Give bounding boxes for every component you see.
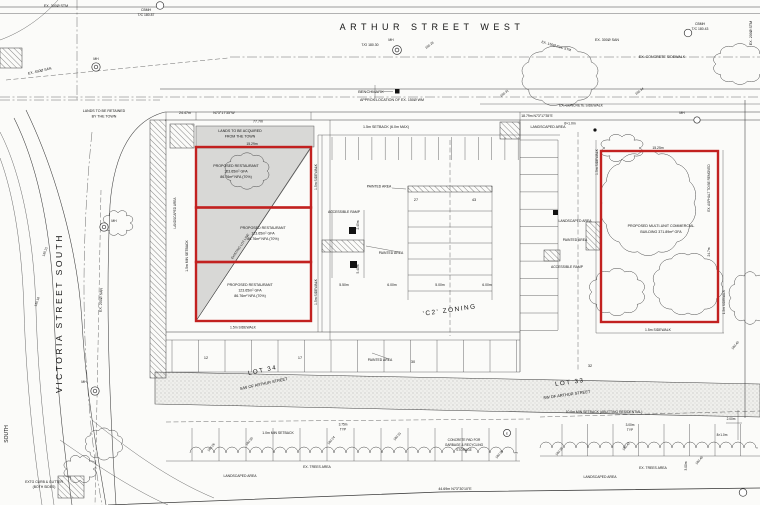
spot-elev-7: 180.31 (393, 431, 402, 441)
curb-gutter-1: EXTG CURB & GUTTER (25, 480, 63, 484)
spot-elev-10: 180.42 (622, 441, 631, 451)
dim-600a: 6.00m (387, 283, 397, 287)
ex-300-stm-label: EX. 300Ø STM (44, 4, 68, 8)
restaurant1-line3: 86.76m² NFA (70%) (220, 175, 252, 179)
dim-375-left-a: 3.75m (339, 423, 348, 427)
spot-elev-9: 180.35 (555, 446, 564, 456)
accessible-parking-sign-icon (349, 227, 356, 234)
arthur-street-name: ARTHUR STREET WEST (340, 22, 525, 32)
tree-icon (653, 253, 723, 314)
dim-2447: 24.47m (179, 111, 191, 115)
stall-count-43: 43 (472, 198, 476, 202)
manhole-icon (739, 489, 747, 497)
lands-retained-2: BY THE TOWN (92, 115, 117, 119)
tree-icon (103, 211, 133, 236)
sidewalk-left-v2: 1.5m SIDEWALK (314, 278, 318, 305)
benchmark-icon (395, 89, 400, 94)
tree-icon (589, 268, 644, 316)
mh-arthur-elev: T/O 180.30 (362, 43, 379, 47)
proposed-commercial-building-outline (601, 151, 718, 322)
curb-gutter-2: (BOTH SIDES) (33, 485, 56, 489)
stall-count-30: 30 (411, 360, 415, 364)
spot-elev-13: 180.21 (42, 246, 49, 257)
cbmh-ne-label: CBMH (695, 22, 706, 26)
spot-elev-6: 180.24 (327, 435, 336, 445)
landscaped-left-v: LANDSCAPED AREA (173, 197, 177, 229)
dim-1529: 15.29m (246, 142, 257, 146)
tree-clouds (64, 44, 760, 483)
stall-count-27: 27 (414, 198, 418, 202)
restaurant2-line2: 123.65m² GFA (251, 232, 275, 236)
dim-550: 5.50m (339, 283, 349, 287)
spot-elev-2: 180.31 (499, 88, 509, 97)
accessible-ramp-1: ACCESSIBLE RAMP (328, 210, 361, 214)
stall-count-12: 12 (204, 356, 208, 360)
mh-e-label: MH (679, 111, 685, 115)
mh-v2-label: MH (81, 380, 87, 384)
dim-375-left-b: TYP (340, 428, 346, 432)
bearing-south: 44.69m N73°30'10"E (438, 487, 472, 491)
ex-300-san-label: EX. 300Ø SAN (595, 38, 619, 42)
dim-300-typ-a: 3.00m (626, 423, 635, 427)
spot-elev-1: 180.28 (424, 40, 434, 49)
sidewalk-right-v2: 1.5m SIDEWALK (722, 289, 726, 314)
manhole-icon (694, 117, 700, 123)
dim-245: 2.45m (356, 220, 360, 229)
mh-nw-label: MH (93, 57, 99, 61)
tree-row-scallop (540, 442, 758, 448)
c2-zoning-label: 'C2' ZONING (422, 303, 477, 317)
setback-rear-right: 10.0m MIN SETBACK (ABUTTING RESIDENTIAL) (566, 410, 643, 414)
sidewalk-right-v1: 1.5m SIDEWALK (595, 148, 599, 175)
mh-arthur-label: MH (388, 38, 394, 42)
dim-500: 5.00m (435, 283, 445, 287)
tree-icon (522, 46, 598, 105)
ex-trees-right: EX. TREES AREA (639, 466, 667, 470)
cbmh-nw-elev: T/C 180.87 (138, 13, 155, 17)
tree-icon (714, 44, 760, 85)
bearing-nw: N73°17'35"W (213, 111, 235, 115)
utility-symbols (91, 2, 747, 497)
catchbasin-manhole-icon (156, 2, 164, 10)
concrete-pad-1: CONCRETE PAD FOR (448, 438, 481, 442)
ex-200-stm-label: EX. 200Ø STM (749, 21, 753, 45)
sidewalk-left-v1: 1.5m SIDEWALK (314, 163, 318, 190)
dim-1525: 15.25m (652, 146, 663, 150)
ex-trees-left: EX. TREES AREA (303, 465, 331, 469)
restaurant3-line3: 86.76m² NFA (70%) (234, 294, 266, 298)
spot-elev-12: 180.40 (731, 340, 740, 350)
painted-area-3: PAINTED AREA (368, 358, 393, 362)
landscaped-top-label: LANDSCAPED AREA (531, 125, 567, 129)
restaurant3-line2: 123.65m² GFA (238, 289, 262, 293)
commercial-line1: PROPOSED MULTI-UNIT COMMERCIAL (628, 224, 695, 228)
concrete-pad-2: GARBAGE & RECYCLING (445, 443, 484, 447)
painted-area-1: PAINTED AREA (367, 185, 392, 189)
tree-icon (729, 272, 760, 325)
landscaped-mid: LANDSCAPED AREA (559, 219, 593, 223)
south-street-label: SOUTH (4, 425, 10, 443)
annotation-text-layer: EX. 300Ø STMCBMHT/C 180.87ARTHUR STREET … (4, 4, 753, 491)
setback-left-v: 1.5m MIN SETBACK (185, 240, 189, 272)
ex-450-san-label: EX. 450Ø SAN (28, 66, 53, 75)
setback-rear-left: 1.0m MIN SETBACK (262, 431, 294, 435)
dim-300-typ-b: TYP (627, 428, 633, 432)
ex-150-pvc-stm-label: EX. 150Ø PVC STM (541, 40, 572, 52)
dim-300-v: 3.00m (684, 461, 688, 470)
stall-count-17: 17 (298, 356, 302, 360)
restaurant1-line1: PROPOSED RESTAURANT (213, 164, 259, 168)
sidewalk-left-bottom: 1.5m SIDEWALK (230, 326, 257, 330)
approx-wm-label: APPROX LOCATION OF EX. 150Ø WM (360, 98, 424, 102)
dim-600b: 6.00m (482, 283, 492, 287)
restaurant1-line2: 123.65m² GFA (224, 170, 248, 174)
site-plan-sheet: EX. 300Ø STMCBMHT/C 180.87ARTHUR STREET … (0, 0, 760, 505)
sidewalk-6x1: 6×1.0m (564, 122, 576, 126)
setback-top-label: 1.5m SETBACK (6.0m MAX) (363, 125, 409, 129)
restaurant2-line1: PROPOSED RESTAURANT (240, 226, 286, 230)
dim-540: 5.40m (356, 264, 360, 273)
dim-200: 2.00m (727, 417, 736, 421)
detail-bubble-e: E (506, 431, 508, 435)
concrete-pad-3: STORAGE (456, 448, 472, 452)
lands-retained-1: LANDS TO BE RETAINED (83, 109, 126, 113)
dim-777: 77.7m (253, 120, 263, 124)
tree-icon (600, 150, 695, 255)
stall-count-32: 32 (588, 364, 592, 368)
restaurant3-line1: PROPOSED RESTAURANT (227, 283, 273, 287)
victoria-street-lines (0, 0, 214, 505)
accessible-ramp-2: ACCESSIBLE RAMP (551, 265, 584, 269)
ex-200-san-label: EX. 200Ø SAN (99, 288, 104, 312)
ex-concrete-sidewalk-e: EX. CONCRETE SIDEWALK (559, 104, 604, 108)
landscaped-bottom-left: LANDSCAPED AREA (224, 474, 258, 478)
asphalt-removed-label: EX. ASPHALT TO BE REMOVED (707, 164, 711, 212)
benchmark-label: BENCHMARK (358, 89, 384, 94)
restaurant2-line3: 86.76m² NFA (70%) (247, 237, 279, 241)
victoria-street-name: VICTORIA STREET SOUTH (54, 233, 64, 393)
rear-lane-stipple-band (155, 372, 760, 417)
painted-area-4: PAINTED AREA (563, 238, 588, 242)
site-plan-drawing: EX. 300Ø STMCBMHT/C 180.87ARTHUR STREET … (0, 0, 760, 505)
mh-v1-label: MH (111, 219, 117, 223)
spot-elev-3: 180.34 (634, 86, 644, 95)
dim-1879: 18.79m N73°17'35"E (521, 114, 553, 118)
spot-elev-11: 180.45 (695, 455, 704, 465)
lands-acquired-1: LANDS TO BE ACQUIRED (218, 129, 262, 133)
landscaped-bottom-right: LANDSCAPED AREA (584, 475, 618, 479)
tree-icon (85, 428, 122, 460)
sidewalk-right-bottom: 1.5m SIDEWALK (645, 328, 672, 332)
dim-247: 24.7m (707, 247, 711, 256)
painted-area-2: PAINTED AREA (379, 251, 404, 255)
lands-acquired-2: FROM THE TOWN (225, 135, 256, 139)
dim-8x1: 8×1.0m (717, 433, 728, 437)
tree-trunk-icon (593, 128, 596, 131)
commercial-line2: BUILDING 371.89m² GFA (640, 230, 682, 234)
sign-post-icon (553, 210, 558, 215)
spot-elev-14: 180.18 (34, 296, 41, 307)
tree-icon (601, 134, 643, 161)
cbmh-nw-label: CBMH (141, 8, 152, 12)
cbmh-ne-elev: T/C 180.43 (692, 27, 709, 31)
ex-concrete-sidewalk-ne: EX. CONCRETE SIDEWALK (639, 55, 686, 59)
west-boulevard-hatch (150, 120, 166, 378)
